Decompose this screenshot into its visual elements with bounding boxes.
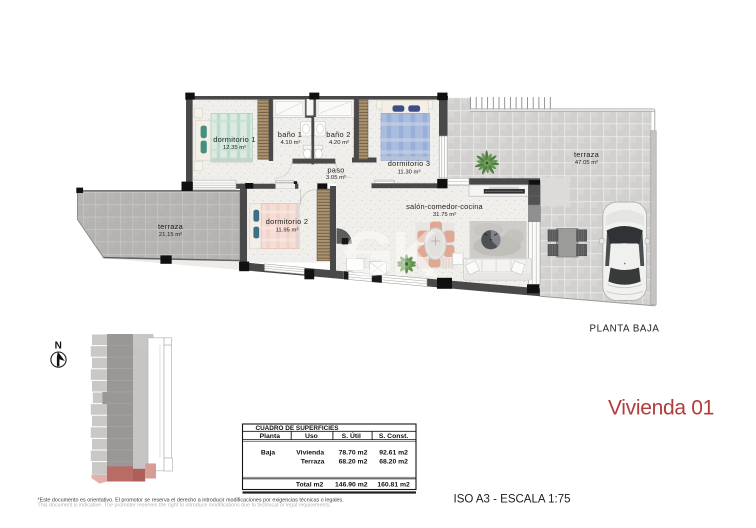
svg-text:This document is indicative. T: This document is indicative. The promote… (38, 502, 331, 508)
svg-text:Baja: Baja (261, 449, 276, 456)
svg-text:Uso: Uso (305, 433, 318, 440)
svg-text:paso: paso (327, 165, 344, 174)
svg-text:12.35 m²: 12.35 m² (223, 145, 246, 151)
svg-text:dormitorio 2: dormitorio 2 (266, 217, 309, 226)
svg-text:N: N (55, 341, 62, 352)
svg-text:dormitorio 1: dormitorio 1 (213, 135, 256, 144)
svg-text:160.81 m2: 160.81 m2 (377, 481, 410, 488)
svg-text:S. Útil: S. Útil (342, 431, 361, 440)
svg-text:92.61 m2: 92.61 m2 (379, 449, 408, 456)
svg-text:Planta: Planta (260, 433, 281, 440)
svg-text:4.10 m²: 4.10 m² (281, 140, 301, 146)
svg-text:ISO A3 - ESCALA 1:75: ISO A3 - ESCALA 1:75 (454, 494, 571, 506)
svg-text:4.20 m²: 4.20 m² (329, 140, 349, 146)
svg-text:S. Const.: S. Const. (379, 433, 409, 440)
svg-text:Terraza: Terraza (301, 459, 325, 466)
svg-text:68.20 m2: 68.20 m2 (379, 459, 408, 466)
svg-text:Vivienda 01: Vivienda 01 (608, 396, 714, 419)
svg-text:terraza: terraza (158, 222, 184, 231)
svg-text:salón-comedor-cocina: salón-comedor-cocina (406, 202, 483, 211)
svg-text:47.05 m²: 47.05 m² (575, 160, 598, 166)
svg-text:31.75 m²: 31.75 m² (433, 212, 456, 218)
svg-text:baño 2: baño 2 (326, 130, 350, 139)
svg-text:Vivienda: Vivienda (296, 449, 324, 456)
svg-text:146.90 m2: 146.90 m2 (335, 481, 368, 488)
svg-text:21.15 m²: 21.15 m² (159, 232, 182, 238)
svg-text:3.05 m²: 3.05 m² (326, 175, 346, 181)
svg-text:PLANTA BAJA: PLANTA BAJA (590, 324, 660, 335)
svg-text:Total m2: Total m2 (296, 481, 324, 488)
svg-text:terraza: terraza (574, 150, 600, 159)
svg-text:baño 1: baño 1 (278, 130, 302, 139)
svg-text:11.95 m²: 11.95 m² (276, 227, 299, 233)
svg-text:11.30 m²: 11.30 m² (398, 169, 421, 175)
svg-text:dormitorio 3: dormitorio 3 (388, 159, 431, 168)
svg-text:CUADRO DE SUPERFICIES: CUADRO DE SUPERFICIES (255, 425, 339, 432)
svg-text:68.20 m2: 68.20 m2 (339, 459, 368, 466)
svg-text:78.70 m2: 78.70 m2 (339, 449, 368, 456)
